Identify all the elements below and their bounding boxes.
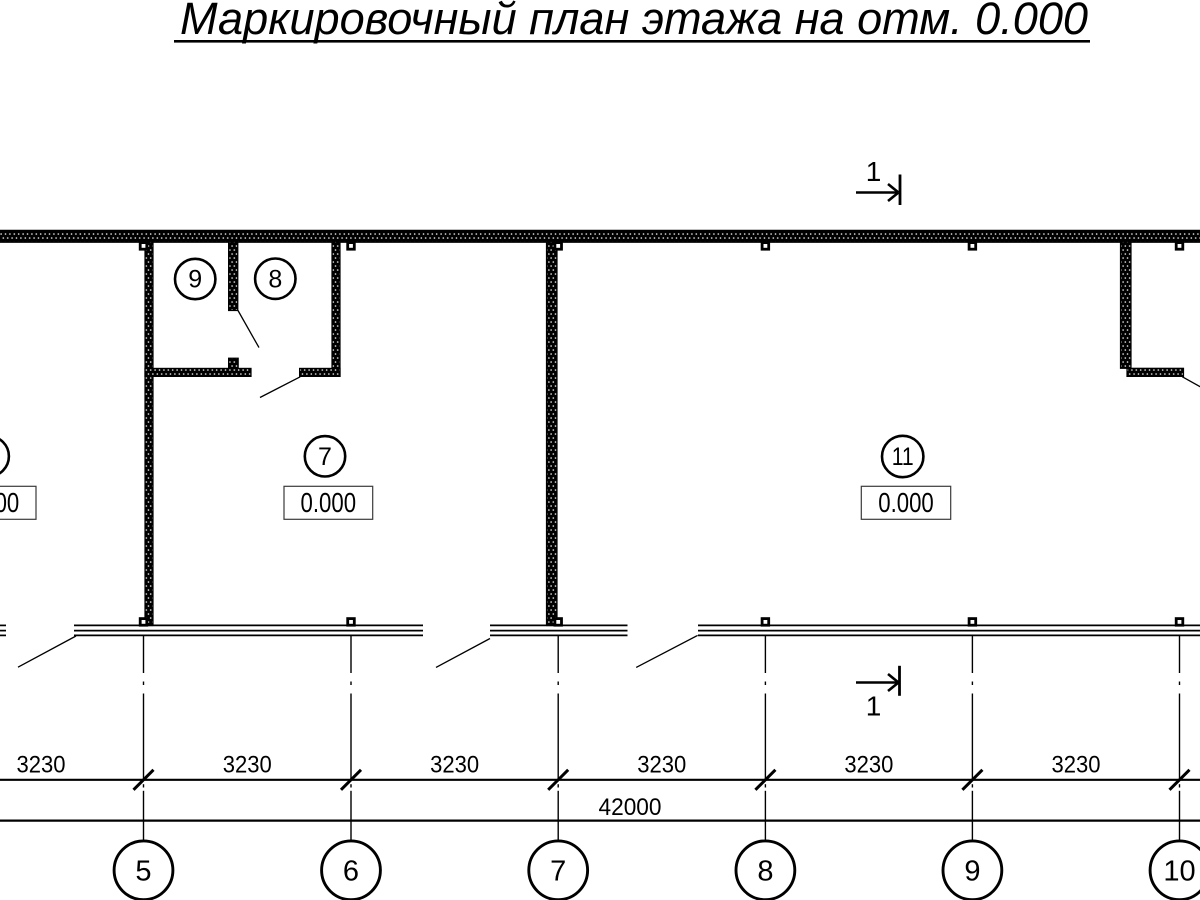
svg-text:9: 9: [964, 855, 980, 887]
svg-text:42000: 42000: [599, 794, 662, 821]
svg-text:11: 11: [892, 443, 914, 471]
svg-text:5: 5: [135, 855, 151, 887]
svg-text:3230: 3230: [637, 752, 686, 779]
svg-text:3230: 3230: [844, 752, 893, 779]
svg-text:1: 1: [866, 691, 882, 722]
svg-text:0.000: 0.000: [301, 487, 357, 518]
svg-text:3230: 3230: [430, 752, 479, 779]
svg-text:9: 9: [188, 266, 202, 294]
svg-text:0.000: 0.000: [0, 487, 19, 518]
svg-text:0.000: 0.000: [878, 487, 934, 518]
svg-text:3230: 3230: [17, 752, 66, 779]
svg-text:8: 8: [268, 265, 282, 293]
svg-text:Маркировочный план этажа на от: Маркировочный план этажа на отм. 0.000: [180, 0, 1088, 44]
svg-text:8: 8: [757, 855, 773, 887]
svg-text:10: 10: [1163, 855, 1195, 887]
svg-text:7: 7: [318, 443, 332, 471]
svg-text:3230: 3230: [223, 752, 272, 779]
svg-text:1: 1: [866, 156, 882, 187]
svg-text:6: 6: [343, 855, 359, 887]
svg-text:7: 7: [550, 855, 566, 887]
svg-text:3230: 3230: [1052, 752, 1101, 779]
